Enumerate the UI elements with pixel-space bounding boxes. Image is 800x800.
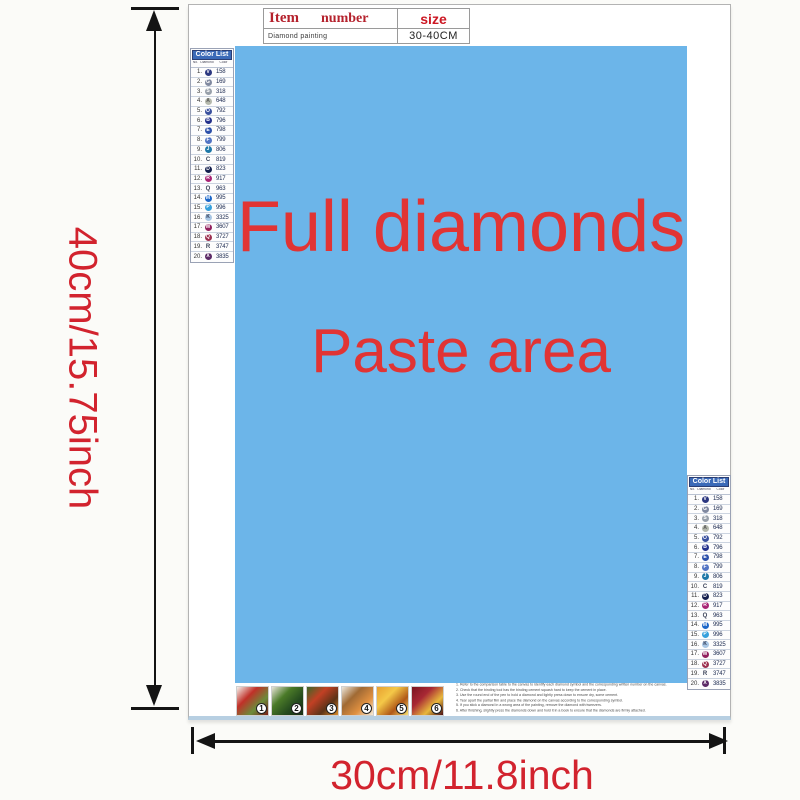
row-number: 11. xyxy=(688,593,699,599)
row-number: 14. xyxy=(191,195,202,201)
vertical-arrow-line xyxy=(154,28,157,686)
instructions-fine-print: 1. Refer to the comparison table to the … xyxy=(456,682,702,718)
dmc-code: 995 xyxy=(711,622,730,628)
color-list-row: 10.C819 xyxy=(688,582,730,592)
diamond-symbol-icon: W xyxy=(205,224,212,231)
diamond-symbol-letter: Q xyxy=(703,613,708,619)
color-list-row: 12.R917 xyxy=(191,175,233,185)
diamond-symbol-icon: B xyxy=(702,544,709,551)
color-list-row: 13.Q963 xyxy=(688,611,730,621)
diamond-symbol-icon: W xyxy=(702,651,709,658)
step-thumbnail: 5 xyxy=(376,686,409,716)
dmc-code: 796 xyxy=(711,545,730,551)
color-list-row: 14.M995 xyxy=(688,621,730,631)
color-list-row: 14.M995 xyxy=(191,194,233,204)
row-number: 19. xyxy=(191,244,202,250)
item-label: Item xyxy=(264,10,299,27)
dmc-code: 3325 xyxy=(214,215,233,221)
dmc-code: 3747 xyxy=(711,671,730,677)
row-number: 20. xyxy=(191,254,202,260)
color-list-row: 9.J806 xyxy=(191,146,233,156)
diamond-symbol-icon: F xyxy=(205,137,212,144)
row-number: 7. xyxy=(191,127,202,133)
row-number: 18. xyxy=(191,234,202,240)
diamond-symbol-icon: X xyxy=(205,253,212,260)
color-list-row: 7.E798 xyxy=(688,553,730,563)
row-number: 10. xyxy=(191,157,202,163)
row-number: 7. xyxy=(688,554,699,560)
row-number: 16. xyxy=(191,215,202,221)
body-size-cell: 30-40CM xyxy=(398,29,469,43)
row-number: 4. xyxy=(688,525,699,531)
dmc-code: 3607 xyxy=(711,651,730,657)
dmc-code: 158 xyxy=(214,69,233,75)
diamond-symbol-icon: V xyxy=(702,496,709,503)
step-number-badge: 5 xyxy=(396,703,407,714)
color-list-row: 17.W3607 xyxy=(191,223,233,233)
paste-area-title-line1: Full diamonds xyxy=(237,186,685,268)
color-list-row: 7.E798 xyxy=(191,126,233,136)
color-list-row: 19.R3747 xyxy=(688,669,730,679)
dmc-code: 792 xyxy=(214,108,233,114)
row-number: 8. xyxy=(191,137,202,143)
dmc-code: 318 xyxy=(711,516,730,522)
dmc-code: 799 xyxy=(711,564,730,570)
col-no: No. xyxy=(688,488,697,491)
diamond-symbol-icon: S xyxy=(205,88,212,95)
step-thumbnail: 3 xyxy=(306,686,339,716)
color-list-row: 6.B796 xyxy=(688,543,730,553)
color-list-row: 15.P996 xyxy=(688,631,730,641)
step-thumbnail: 1 xyxy=(236,686,269,716)
instructions-text: 1. Refer to the comparison table to the … xyxy=(456,682,702,714)
dmc-code: 3835 xyxy=(214,254,233,260)
color-list-row: 18.Q3727 xyxy=(688,660,730,670)
diamond-symbol-letter: C xyxy=(703,584,707,590)
color-list-row: 16.K3325 xyxy=(688,640,730,650)
row-number: 10. xyxy=(688,584,699,590)
dmc-code: 169 xyxy=(214,79,233,85)
diamond-symbol-icon: D xyxy=(702,593,709,600)
diamond-symbol-letter: R xyxy=(703,671,707,677)
dmc-code: 798 xyxy=(711,554,730,560)
step-thumbnail: 6 xyxy=(411,686,444,716)
dmc-code: 796 xyxy=(214,118,233,124)
row-number: 2. xyxy=(191,79,202,85)
diamond-symbol-icon: Q xyxy=(702,661,709,668)
color-list-row: 2.G169 xyxy=(688,505,730,515)
diamond-symbol-icon: F xyxy=(702,564,709,571)
product-infographic: Item number size Diamond painting 30-40C… xyxy=(0,0,800,800)
color-list-row: 20.X3835 xyxy=(191,252,233,262)
color-list-row: 13.Q963 xyxy=(191,184,233,194)
paste-area-title-line2: Paste area xyxy=(311,316,611,387)
color-list-row: 12.R917 xyxy=(688,602,730,612)
color-list-left: Color ListNo.DiamondColor1.V1582.G1693.S… xyxy=(190,48,234,263)
row-number: 12. xyxy=(688,603,699,609)
color-list-row: 4.A648 xyxy=(191,97,233,107)
paste-area: Full diamonds Paste area xyxy=(235,46,687,683)
color-list-row: 17.W3607 xyxy=(688,650,730,660)
color-list-row: 1.V158 xyxy=(191,68,233,78)
color-list-title: Color List xyxy=(192,50,232,60)
diamond-symbol-icon: P xyxy=(205,204,212,211)
body-item-cell: Diamond painting xyxy=(264,29,398,43)
dmc-code: 823 xyxy=(711,593,730,599)
step-number-badge: 3 xyxy=(326,703,337,714)
size-label: size xyxy=(420,11,446,27)
dmc-code: 318 xyxy=(214,89,233,95)
color-list-row: 16.K3325 xyxy=(191,213,233,223)
row-number: 19. xyxy=(688,671,699,677)
row-number: 6. xyxy=(191,118,202,124)
col-color: Color xyxy=(711,488,730,491)
row-number: 1. xyxy=(688,496,699,502)
diamond-symbol-icon: J xyxy=(702,573,709,580)
item-size-table: Item number size Diamond painting 30-40C… xyxy=(263,8,470,44)
row-number: 16. xyxy=(688,642,699,648)
row-number: 12. xyxy=(191,176,202,182)
size-value: 30-40CM xyxy=(409,30,458,42)
color-list-header-row: No.DiamondColor xyxy=(688,488,730,495)
dmc-code: 819 xyxy=(711,584,730,590)
color-list-row: 1.V158 xyxy=(688,495,730,505)
diamond-symbol-icon: D xyxy=(205,166,212,173)
row-number: 11. xyxy=(191,166,202,172)
color-list-row: 9.J806 xyxy=(688,573,730,583)
color-list-row: 10.C819 xyxy=(191,155,233,165)
row-number: 9. xyxy=(191,147,202,153)
row-number: 8. xyxy=(688,564,699,570)
diamond-symbol-icon: V xyxy=(205,69,212,76)
color-list-row: 5.O792 xyxy=(688,534,730,544)
row-number: 5. xyxy=(191,108,202,114)
dmc-code: 996 xyxy=(711,632,730,638)
color-list-row: 15.P996 xyxy=(191,204,233,214)
color-list-row: 5.O792 xyxy=(191,107,233,117)
dmc-code: 3727 xyxy=(711,661,730,667)
diamond-symbol-icon: Q xyxy=(205,234,212,241)
dmc-code: 158 xyxy=(711,496,730,502)
row-number: 17. xyxy=(191,224,202,230)
dmc-code: 995 xyxy=(214,195,233,201)
color-list-row: 3.S318 xyxy=(688,514,730,524)
diamond-symbol-icon: O xyxy=(702,535,709,542)
dmc-code: 3747 xyxy=(214,244,233,250)
dmc-code: 792 xyxy=(711,535,730,541)
col-no: No. xyxy=(191,61,200,64)
diamond-symbol-letter: R xyxy=(206,244,210,250)
color-list-title: Color List xyxy=(689,477,729,487)
step-number-badge: 1 xyxy=(256,703,267,714)
header-item-cell: Item number xyxy=(264,9,398,28)
row-number: 17. xyxy=(688,651,699,657)
color-list-row: 8.F799 xyxy=(688,563,730,573)
diamond-symbol-icon: K xyxy=(205,214,212,221)
diamond-symbol-icon: A xyxy=(702,525,709,532)
diamond-symbol-icon: S xyxy=(702,515,709,522)
row-number: 14. xyxy=(688,622,699,628)
row-number: 5. xyxy=(688,535,699,541)
diamond-symbol-icon: G xyxy=(702,506,709,513)
dmc-code: 799 xyxy=(214,137,233,143)
diamond-symbol-letter: Q xyxy=(206,186,211,192)
row-number: 3. xyxy=(688,516,699,522)
dmc-code: 806 xyxy=(214,147,233,153)
dmc-code: 3325 xyxy=(711,642,730,648)
table-header-row: Item number size xyxy=(264,9,469,29)
dmc-code: 917 xyxy=(711,603,730,609)
dmc-code: 917 xyxy=(214,176,233,182)
diamond-symbol-icon: R xyxy=(702,602,709,609)
horizontal-arrow-left-cap xyxy=(191,727,194,754)
diamond-symbol-icon: X xyxy=(702,680,709,687)
step-thumbnail: 2 xyxy=(271,686,304,716)
color-list-row: 8.F799 xyxy=(191,136,233,146)
vertical-arrow-bottom-cap xyxy=(131,707,179,710)
diamond-symbol-icon: E xyxy=(702,554,709,561)
dmc-code: 648 xyxy=(214,98,233,104)
dmc-code: 3835 xyxy=(711,681,730,687)
col-diamond: Diamond xyxy=(200,61,214,64)
row-number: 6. xyxy=(688,545,699,551)
product-name: Diamond painting xyxy=(264,33,327,40)
color-list-right: Color ListNo.DiamondColor1.V1582.G1693.S… xyxy=(687,475,731,690)
number-label: number xyxy=(321,11,368,27)
row-number: 15. xyxy=(688,632,699,638)
dmc-code: 819 xyxy=(214,157,233,163)
color-list-row: 6.B796 xyxy=(191,116,233,126)
row-number: 9. xyxy=(688,574,699,580)
diamond-symbol-icon: O xyxy=(205,108,212,115)
color-list-row: 3.S318 xyxy=(191,87,233,97)
diamond-symbol-icon: R xyxy=(205,175,212,182)
dmc-code: 648 xyxy=(711,525,730,531)
row-number: 3. xyxy=(191,89,202,95)
diamond-symbol-icon: J xyxy=(205,146,212,153)
diamond-symbol-icon: P xyxy=(702,631,709,638)
row-number: 18. xyxy=(688,661,699,667)
diamond-symbol-icon: B xyxy=(205,117,212,124)
color-list-row: 11.D823 xyxy=(191,165,233,175)
color-list-row: 2.G169 xyxy=(191,78,233,88)
height-dimension-label: 40cm/15.75inch xyxy=(60,227,105,509)
row-number: 13. xyxy=(688,613,699,619)
dmc-code: 798 xyxy=(214,127,233,133)
dmc-code: 823 xyxy=(214,166,233,172)
dmc-code: 963 xyxy=(711,613,730,619)
dmc-code: 169 xyxy=(711,506,730,512)
vertical-arrowhead-down xyxy=(146,685,162,706)
color-list-row: 11.D823 xyxy=(688,592,730,602)
row-number: 4. xyxy=(191,98,202,104)
color-list-header-row: No.DiamondColor xyxy=(191,61,233,68)
row-number: 13. xyxy=(191,186,202,192)
horizontal-arrow-line xyxy=(209,740,715,743)
dmc-code: 996 xyxy=(214,205,233,211)
diamond-symbol-letter: C xyxy=(206,157,210,163)
diamond-symbol-icon: G xyxy=(205,79,212,86)
dmc-code: 963 xyxy=(214,186,233,192)
instruction-line: 1. Refer to the comparison table to the … xyxy=(456,682,702,687)
row-number: 1. xyxy=(191,69,202,75)
step-number-badge: 6 xyxy=(431,703,442,714)
header-size-cell: size xyxy=(398,9,469,28)
instruction-line: 6. After finishing, slightly press the d… xyxy=(456,708,702,713)
col-diamond: Diamond xyxy=(697,488,711,491)
diamond-symbol-icon: K xyxy=(702,641,709,648)
row-number: 15. xyxy=(191,205,202,211)
color-list-row: 19.R3747 xyxy=(191,242,233,252)
step-number-badge: 2 xyxy=(291,703,302,714)
table-body-row: Diamond painting 30-40CM xyxy=(264,29,469,43)
step-number-badge: 4 xyxy=(361,703,372,714)
step-thumbnails: 123456 xyxy=(236,686,444,716)
col-color: Color xyxy=(214,61,233,64)
diamond-symbol-icon: A xyxy=(205,98,212,105)
width-dimension-label: 30cm/11.8inch xyxy=(330,752,594,799)
step-thumbnail: 4 xyxy=(341,686,374,716)
diamond-symbol-icon: M xyxy=(702,622,709,629)
color-list-row: 18.Q3727 xyxy=(191,233,233,243)
dmc-code: 3727 xyxy=(214,234,233,240)
dmc-code: 3607 xyxy=(214,224,233,230)
horizontal-arrow-right-cap xyxy=(723,727,726,754)
color-list-row: 4.A648 xyxy=(688,524,730,534)
diamond-symbol-icon: E xyxy=(205,127,212,134)
dmc-code: 806 xyxy=(711,574,730,580)
diamond-symbol-icon: M xyxy=(205,195,212,202)
row-number: 2. xyxy=(688,506,699,512)
